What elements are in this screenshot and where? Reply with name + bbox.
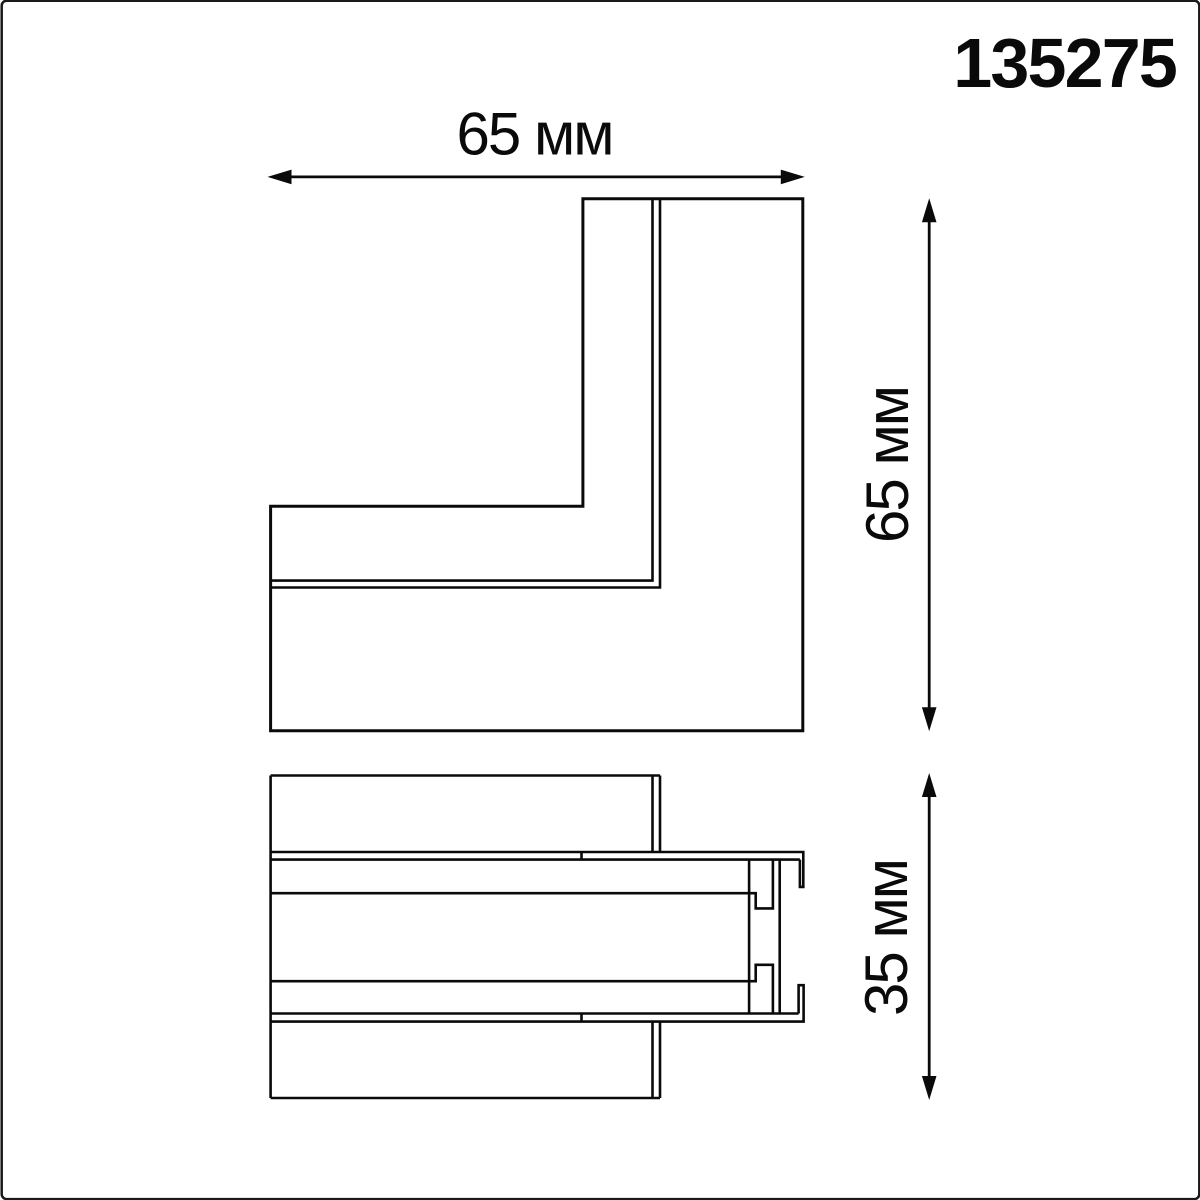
svg-text:35 мм: 35 мм	[853, 860, 920, 1016]
svg-text:65 мм: 65 мм	[457, 101, 613, 168]
svg-text:65 мм: 65 мм	[854, 387, 921, 543]
svg-text:135275: 135275	[953, 24, 1176, 102]
